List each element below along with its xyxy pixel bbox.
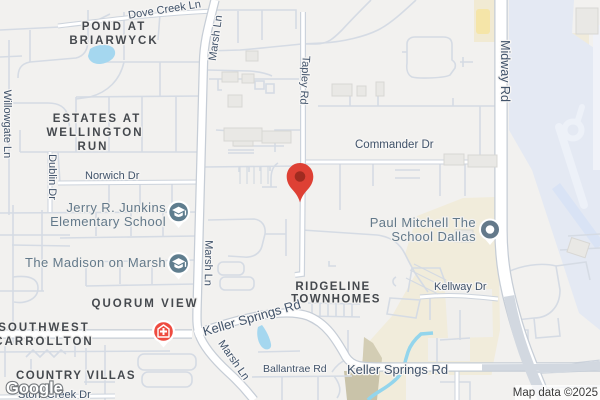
- svg-text:Map data ©2025: Map data ©2025: [513, 387, 598, 399]
- svg-text:Willowgate Ln: Willowgate Ln: [1, 90, 13, 158]
- svg-text:SOUTHWEST: SOUTHWEST: [0, 322, 90, 334]
- svg-text:Kellway Dr: Kellway Dr: [434, 281, 487, 293]
- svg-text:Midway Rd: Midway Rd: [498, 40, 512, 102]
- svg-text:ESTATES AT: ESTATES AT: [53, 113, 142, 125]
- svg-text:Paul Mitchell The: Paul Mitchell The: [370, 215, 476, 230]
- svg-text:Elementary School: Elementary School: [50, 214, 166, 229]
- svg-text:Jerry R. Junkins: Jerry R. Junkins: [66, 200, 166, 215]
- svg-text:Tapley Rd: Tapley Rd: [297, 55, 312, 104]
- svg-text:RIDGELINE: RIDGELINE: [295, 281, 370, 293]
- svg-text:CARROLLTON: CARROLLTON: [0, 336, 94, 348]
- svg-text:The Madison on Marsh: The Madison on Marsh: [25, 255, 166, 270]
- svg-text:RUN: RUN: [78, 141, 109, 153]
- svg-text:School Dallas: School Dallas: [391, 229, 476, 244]
- svg-text:Google: Google: [6, 380, 63, 398]
- svg-text:Norwich Dr: Norwich Dr: [85, 170, 140, 182]
- svg-text:Marsh Ln: Marsh Ln: [202, 240, 215, 286]
- svg-text:Ballantrae Rd: Ballantrae Rd: [263, 363, 327, 375]
- svg-text:Keller Springs Rd: Keller Springs Rd: [347, 362, 448, 377]
- svg-text:TOWNHOMES: TOWNHOMES: [291, 294, 381, 306]
- svg-text:Dublin Dr: Dublin Dr: [46, 154, 58, 200]
- svg-text:POND AT: POND AT: [82, 21, 146, 33]
- svg-text:BRIARWYCK: BRIARWYCK: [69, 35, 158, 47]
- svg-text:Commander Dr: Commander Dr: [355, 139, 434, 151]
- svg-text:WELLINGTON: WELLINGTON: [46, 127, 143, 139]
- svg-text:QUORUM VIEW: QUORUM VIEW: [92, 298, 199, 310]
